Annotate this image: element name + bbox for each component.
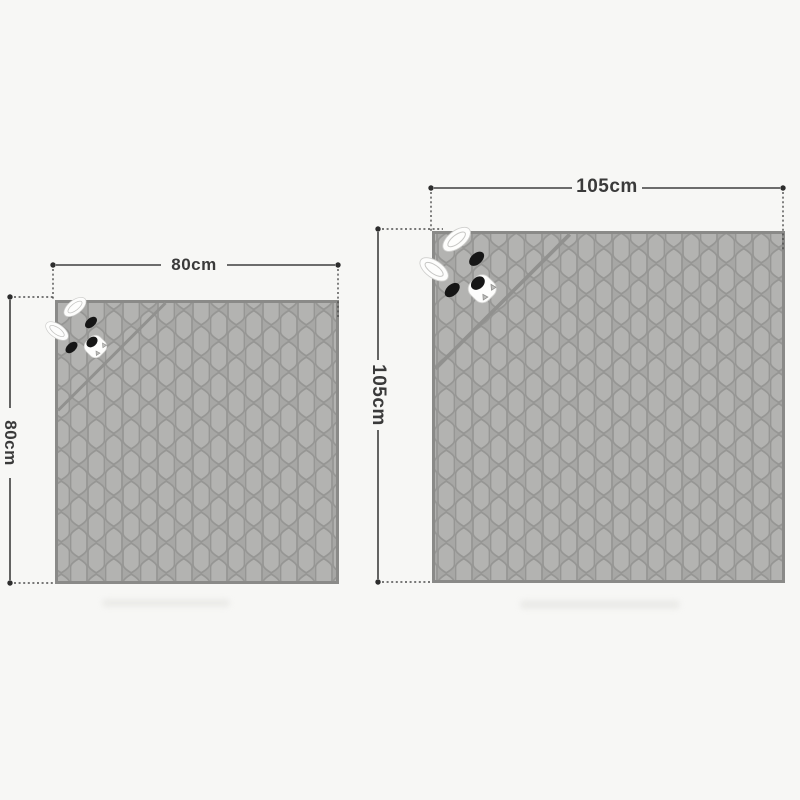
blanket-shadow: [520, 600, 680, 609]
endpoint-dot: [7, 294, 12, 299]
endpoint-dot: [375, 226, 380, 231]
endpoint-dot: [7, 580, 12, 585]
product-dimension-diagram: 80cm 80cm 105cm 105cm: [0, 0, 800, 800]
blanket-large: [416, 223, 784, 582]
large-blanket-width-label: 105cm: [570, 176, 644, 198]
endpoint-dot: [335, 262, 340, 267]
endpoint-dot: [375, 579, 380, 584]
large-blanket-height-label: 105cm: [367, 358, 389, 432]
diagram-canvas: [0, 0, 800, 800]
blanket-small: [42, 294, 337, 583]
endpoint-dot: [780, 185, 785, 190]
endpoint-dot: [50, 262, 55, 267]
small-blanket-width-label: 80cm: [161, 254, 227, 276]
blanket-shadow: [102, 599, 230, 607]
endpoint-dot: [428, 185, 433, 190]
small-blanket-height-label: 80cm: [0, 410, 21, 476]
